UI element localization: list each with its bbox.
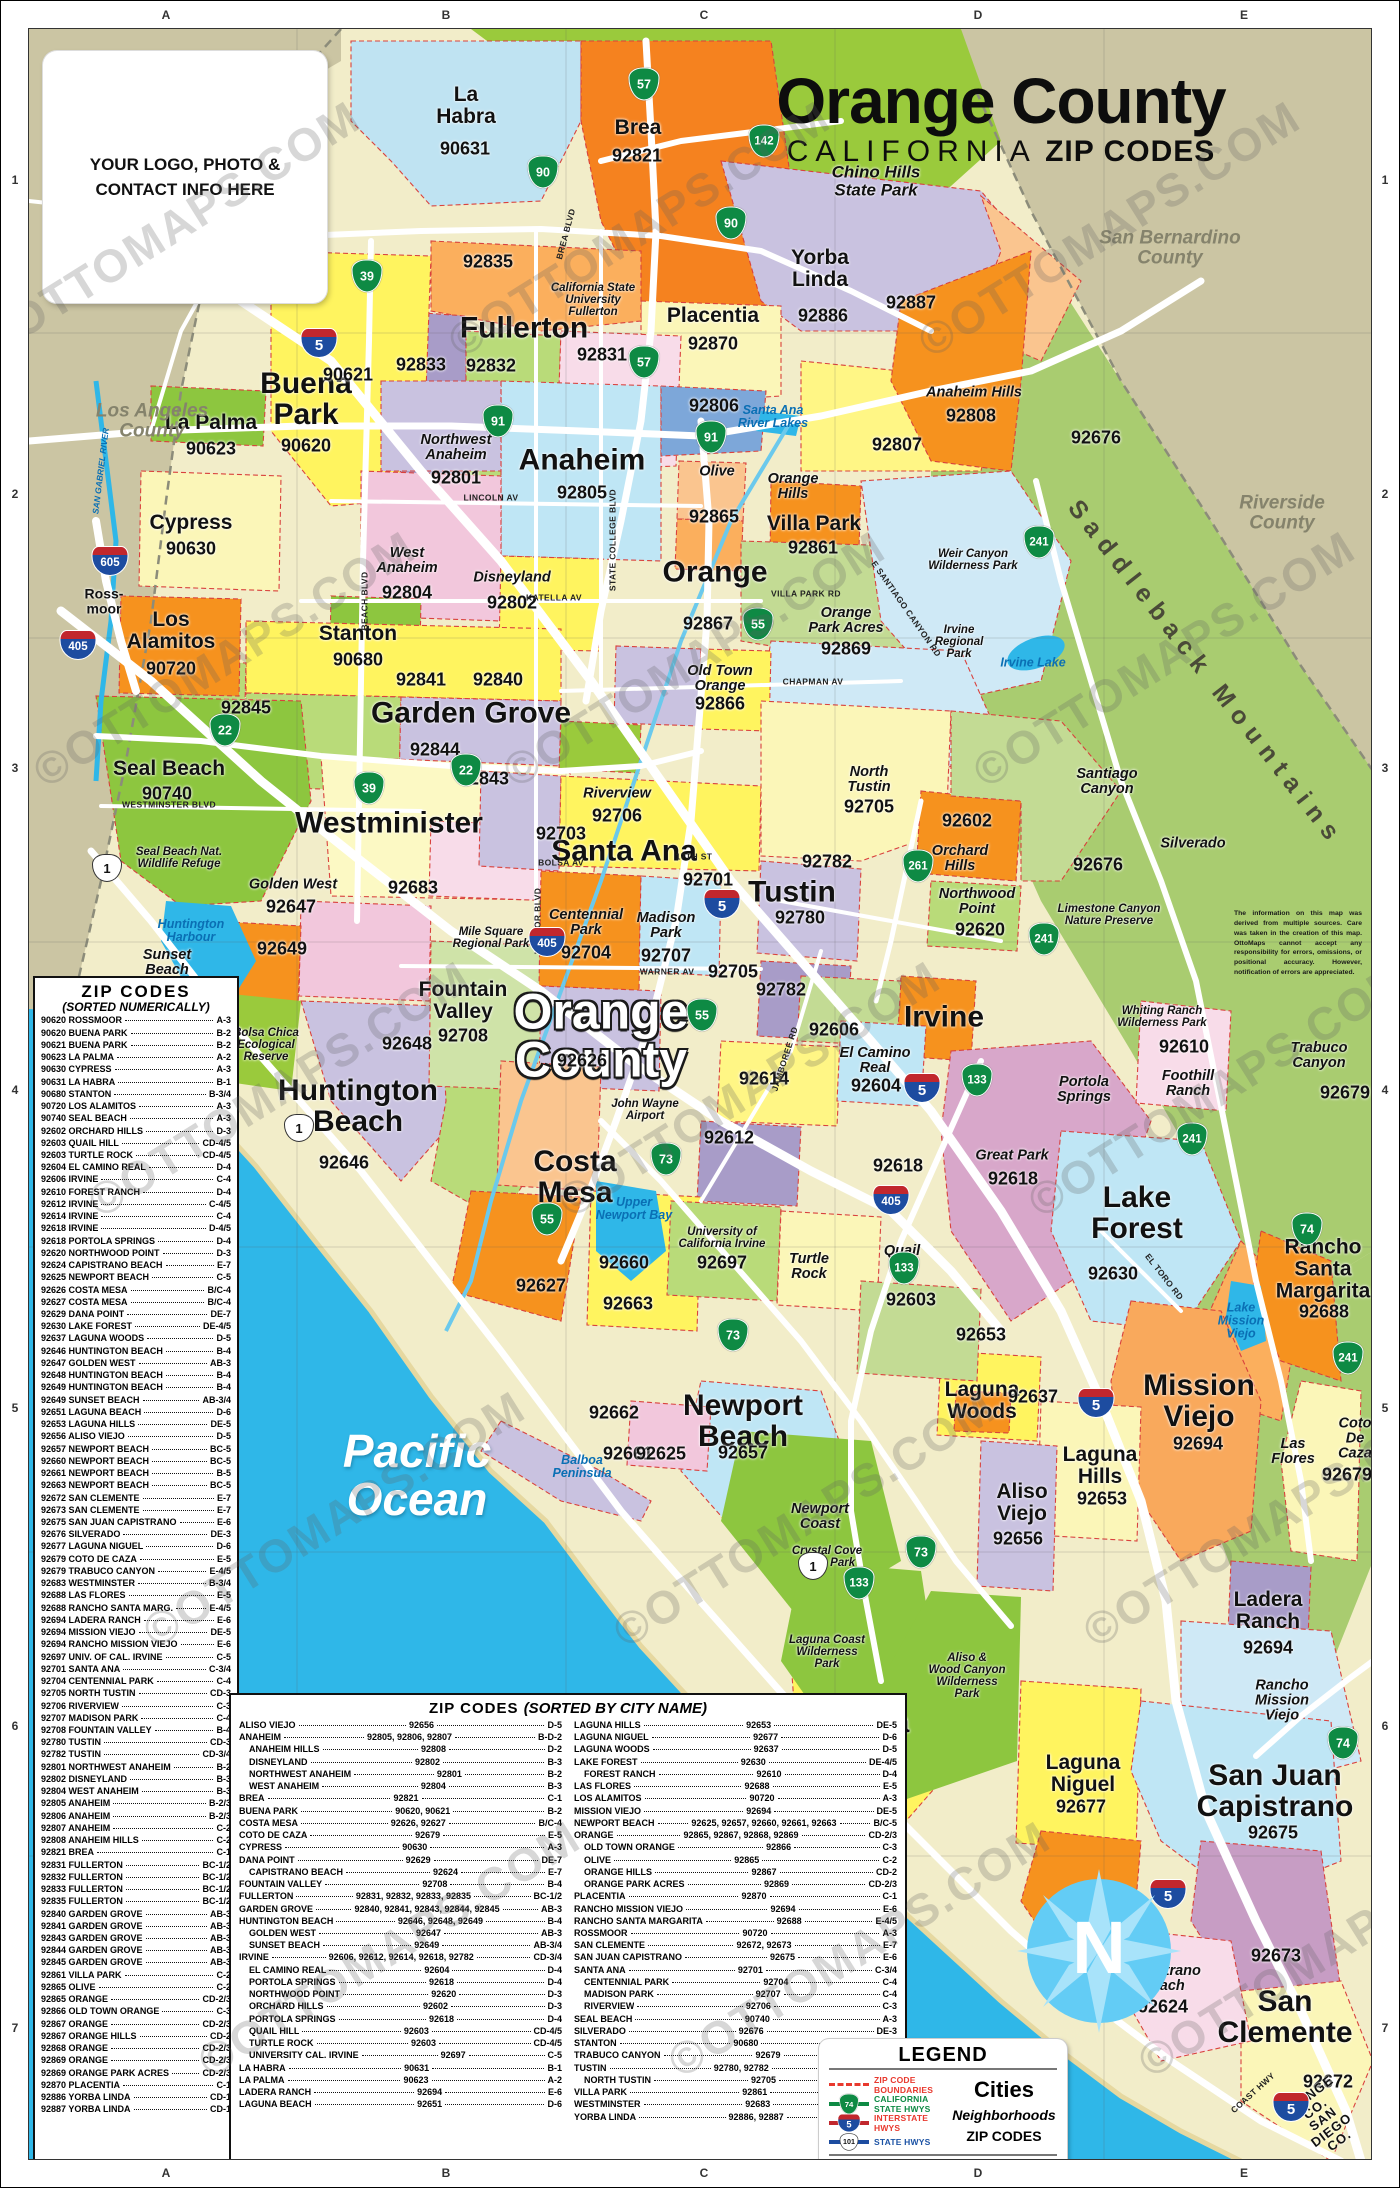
map-label: Villa Park [767,513,861,535]
zip-list-by-city-col1: ALISO VIEJO92656D-5ANAHEIM92805, 92806, … [239,1719,562,2123]
city-zip-row: RANCHO MISSION VIEJO92694E-6 [574,1903,897,1915]
city-zip-row: COSTA MESA92626, 92627B/C-4 [239,1817,562,1829]
zip-row: 92683 WESTMINSTERB-3/4 [41,1577,231,1589]
grid-ref-B: B [442,2166,451,2180]
city-zip-row: OLD TOWN ORANGE92866C-3 [574,1841,897,1853]
map-label: San Bernardino County [1099,228,1240,268]
map-label: San Clemente [1217,1986,1352,2048]
zip-row: 92677 LAGUNA NIGUELD-6 [41,1540,231,1552]
city-zip-row: CENTENNIAL PARK92704C-4 [574,1976,897,1988]
grid-ref-1: 1 [12,173,19,187]
zip-list-numeric-rows: 90620 ROSSMOORA-390620 BUENA PARKB-29062… [41,1014,231,2115]
map-label: WARNER AV [640,968,695,977]
map-label: 92886 [798,307,848,326]
zip-row: 92675 SAN JUAN CAPISTRANOE-6 [41,1516,231,1528]
map-label: Madison Park [637,911,696,941]
city-zip-row: LAS FLORES92688E-5 [574,1780,897,1792]
map-label: VILLA PARK RD [771,590,841,599]
zip-list-numeric-subtitle: (SORTED NUMERICALLY) [41,1000,231,1014]
grid-ref-7: 7 [12,2021,19,2035]
city-zip-row: ORANGE HILLS92867CD-2 [574,1866,897,1878]
map-label: 92618 [873,1157,923,1176]
city-zip-row: UNIVERSITY CAL. IRVINE92697C-5 [239,2049,562,2061]
map-label: California State University Fullerton [551,283,635,319]
subtitle-zipcodes: ZIP CODES [1045,135,1215,168]
map-label: Trabuco Canyon [1291,1041,1348,1071]
zip-row: 92861 VILLA PARKC-2 [41,1969,231,1981]
map-label: Ross- moor [85,586,124,615]
map-label: 92861 [788,539,838,558]
map-label: 92688 [1299,1303,1349,1322]
map-label: Orchard Hills [932,844,988,874]
compass-north-letter: N [1072,1905,1125,1990]
map-label: Huntington Harbour [158,918,225,944]
city-zip-row: QUAIL HILL92603CD-4/5 [239,2025,562,2037]
map-label: 92806 [689,397,739,416]
map-label: 92612 [704,1129,754,1148]
map-label: 92663 [603,1295,653,1314]
map-disclaimer: The information on this map was derived … [1234,909,1362,978]
map-label: 90623 [186,440,236,459]
map-label: Upper Newport Bay [596,1196,672,1222]
zip-row: 92661 NEWPORT BEACHB-5 [41,1467,231,1479]
zip-row: 92676 SILVERADODE-3 [41,1528,231,1540]
map-label: 92801 [431,469,481,488]
map-label: West Anaheim [376,546,437,576]
zip-row: 92651 LAGUNA BEACHD-6 [41,1406,231,1418]
zip-row: 92701 SANTA ANAC-3/4 [41,1663,231,1675]
city-zip-row: COTO DE CAZA92679E-5 [239,1829,562,1841]
zip-row: 92808 ANAHEIM HILLSC-2 [41,1834,231,1846]
city-zip-row: SAN CLEMENTE92672, 92673E-7 [574,1939,897,1951]
map-label: 92782 [802,853,852,872]
map-label: 92780 [775,909,825,928]
zip-row: 92618 PORTOLA SPRINGSD-4 [41,1235,231,1247]
city-zip-row: SUNSET BEACH92649AB-3/4 [239,1939,562,1951]
grid-letters-bottom: ABCDE [1,2159,1399,2187]
grid-ref-2: 2 [1382,487,1389,501]
grid-numbers-right: 1234567 [1371,1,1399,2187]
city-zip-row: EL CAMINO REAL92604D-4 [239,1964,562,1976]
map-label: Weir Canyon Wilderness Park [928,549,1017,573]
zip-row: 92843 GARDEN GROVEAB-3 [41,1932,231,1944]
map-label: 92662 [589,1404,639,1423]
map-label: Great Park [975,1148,1048,1163]
zip-row: 92627 COSTA MESAB/C-4 [41,1296,231,1308]
city-zip-row: FULLERTON92831, 92832, 92833, 92835BC-1/… [239,1890,562,1902]
zip-row: 92624 CAPISTRANO BEACHE-7 [41,1259,231,1271]
city-zip-row: ROSSMOOR90720A-3 [574,1927,897,1939]
zip-row: 92833 FULLERTONBC-1/2 [41,1883,231,1895]
map-label: 92694 [1243,1639,1293,1658]
zip-row: 92679 COTO DE CAZAE-5 [41,1553,231,1565]
grid-ref-E: E [1240,8,1248,22]
map-label: Rancho Mission Viejo [1238,1678,1327,1723]
grid-ref-7: 7 [1382,2021,1389,2035]
map-label: El Camino Real [840,1046,911,1076]
map-label: 92705 [844,798,894,817]
zip-row: 90630 CYPRESSA-3 [41,1063,231,1075]
map-label: Mission Viejo [1143,1370,1255,1432]
legend-label: STATE HWYS [874,2137,930,2147]
map-label: 92708 [438,1027,488,1046]
map-label: Lake Mission Viejo [1218,1302,1265,1341]
zip-row: 92688 LAS FLORESE-5 [41,1589,231,1601]
map-label: 92807 [872,436,922,455]
zip-row: 92620 NORTHWOOD POINTD-3 [41,1247,231,1259]
zip-row: 92618 IRVINED-4/5 [41,1222,231,1234]
map-label: Placentia [667,305,759,327]
grid-ref-6: 6 [1382,1719,1389,1733]
logo-placeholder-line2: CONTACT INFO HERE [95,177,274,203]
zip-row: 90621 BUENA PARKB-2 [41,1039,231,1051]
compass-rose: N [1014,1867,1184,2035]
legend-row: 74CALIFORNIA STATE HWYS [829,2094,951,2113]
map-label: 92833 [396,356,446,375]
map-label: Rancho Santa Margarita [1276,1236,1371,1301]
map-label: 92618 [988,1170,1038,1189]
map-label: Bolsa Chica Ecological Reserve [233,1028,299,1064]
zip-list-by-city: ZIP CODES (SORTED BY CITY NAME) ALISO VI… [229,1693,907,2159]
city-zip-row: OLIVE92865C-2 [574,1854,897,1866]
zip-row: 92801 NORTHWEST ANAHEIMB-2 [41,1761,231,1773]
zip-row: 92708 FOUNTAIN VALLEYB-4 [41,1724,231,1736]
zip-row: 92629 DANA POINTDE-7 [41,1308,231,1320]
map-label: 92832 [466,357,516,376]
legend-label: INTERSTATE HWYS [874,2113,951,2133]
legend-label: CALIFORNIA STATE HWYS [874,2094,951,2114]
map-label: CHAPMAN AV [783,678,844,687]
grid-ref-3: 3 [12,761,19,775]
map-label: 92887 [886,294,936,313]
map-poster: ABCDE ABCDE 1234567 1234567 [0,0,1400,2188]
map-label: 92603 [886,1291,936,1310]
city-zip-row: GOLDEN WEST92647AB-3 [239,1927,562,1939]
page-title: Orange County [651,69,1351,133]
map-label: 92677 [1056,1798,1106,1817]
city-zip-row: PORTOLA SPRINGS92618D-4 [239,1976,562,1988]
zip-row: 92845 GARDEN GROVEAB-3 [41,1956,231,1968]
zip-row: 92612 IRVINEC-4/5 [41,1198,231,1210]
zip-row: 92867 ORANGE HILLSCD-2 [41,2030,231,2042]
map-label: Golden West [249,877,337,892]
map-label: 92675 [1248,1824,1298,1843]
zip-row: 92782 TUSTINCD-3/4 [41,1748,231,1760]
map-label: Seal Beach Nat. Wildlife Refuge [136,847,222,871]
map-label: 90630 [166,540,216,559]
zip-row: 92630 LAKE FORESTDE-4/5 [41,1320,231,1332]
legend-shield-5: 5 [838,2113,861,2132]
map-label: BOLSA AV [538,859,584,868]
map-label: Lake Forest [1091,1182,1183,1244]
map-label: Turtle Rock [789,1252,829,1282]
map-label: 92808 [946,407,996,426]
logo-placeholder[interactable]: YOUR LOGO, PHOTO & CONTACT INFO HERE [43,51,327,303]
map-label: 92626 [557,1052,607,1071]
city-zip-row: LOS ALAMITOS90720A-3 [574,1792,897,1804]
zip-row: 92656 ALISO VIEJOD-5 [41,1430,231,1442]
map-label: 92804 [382,584,432,603]
zip-row: 92647 GOLDEN WESTAB-3 [41,1357,231,1369]
city-zip-row: SANTA ANA92701C-3/4 [574,1964,897,1976]
map-label: John Wayne Airport [611,1099,679,1123]
zip-row: 92648 HUNTINGTON BEACHB-4 [41,1369,231,1381]
zip-row: 92865 OLIVEC-2 [41,1981,231,1993]
page-subtitle: CALIFORNIA ZIP CODES [651,135,1351,169]
map-label: 92620 [955,921,1005,940]
map-label: Sunset Beach [143,948,191,978]
map-label: KATELLA AV [526,594,582,603]
city-zip-row: ORANGE92865, 92867, 92868, 92869CD-2/3 [574,1829,897,1841]
map-label: Los Alamitos [127,609,216,653]
map-label: Coto De Caza [1338,1416,1371,1461]
map-label: 92840 [473,671,523,690]
grid-ref-C: C [700,8,709,22]
zip-row: 90680 STANTONB-3/4 [41,1088,231,1100]
map-label: 92656 [993,1530,1043,1549]
map-label: 92637 [1008,1388,1058,1407]
grid-ref-A: A [162,2166,171,2180]
map-label: Santiago Canyon [1076,767,1137,797]
map-label: BEACH BLVD [361,571,370,630]
zip-row: 92706 RIVERVIEWC-3 [41,1700,231,1712]
grid-ref-4: 4 [12,1083,19,1097]
map-label: 90720 [146,660,196,679]
city-zip-row: LAGUNA NIGUEL92677D-6 [574,1731,897,1743]
city-zip-row: TURTLE ROCK92603CD-4/5 [239,2037,562,2049]
zip-row: 92807 ANAHEIMC-2 [41,1822,231,1834]
map-label: Portola Springs [1057,1075,1111,1105]
legend-swatch-zipdash [829,2083,869,2086]
map-label: 92676 [1071,429,1121,448]
legend-swatch-us: 101 [829,2140,869,2144]
zip-row: 90620 ROSSMOORA-3 [41,1014,231,1026]
map-label: 92841 [396,671,446,690]
zip-row: 92844 GARDEN GROVEAB-3 [41,1944,231,1956]
map-label: 92625 [636,1445,686,1464]
zip-row: 92870 PLACENTIAC-1 [41,2079,231,2091]
zip-row: 92804 WEST ANAHEIMB-3 [41,1785,231,1797]
map-label: San Juan Capistrano [1197,1760,1354,1822]
zip-row: 92604 EL CAMINO REALD-4 [41,1161,231,1173]
map-label: La Habra [436,84,496,128]
grid-ref-3: 3 [1382,761,1389,775]
map-label: Los Angeles County [96,401,208,441]
zip-row: 92649 HUNTINGTON BEACHB-4 [41,1381,231,1393]
legend-row: 5INTERSTATE HWYS [829,2113,951,2132]
legend-rows: ZIP CODE BOUNDARIES74CALIFORNIA STATE HW… [829,2075,951,2151]
map-label: 92610 [1159,1038,1209,1057]
map-label: Irvine Lake [1000,657,1065,670]
map-label: 17TH ST [676,853,713,862]
map-label: Seal Beach [113,758,225,780]
city-zip-row: GARDEN GROVE92840, 92841, 92843, 92844, … [239,1903,562,1915]
legend-swatch-state: 74 [829,2102,869,2106]
zip-row: 92625 NEWPORT BEACHC-5 [41,1271,231,1283]
city-zip-row: SAN JUAN CAPISTRANO92675E-6 [574,1951,897,1963]
city-zip-row: PORTOLA SPRINGS92618D-4 [239,2013,562,2025]
zip-row: 92869 ORANGECD-2/3 [41,2054,231,2066]
zip-row: 92603 QUAIL HILLCD-4/5 [41,1137,231,1149]
city-zip-row: LAGUNA BEACH92651D-6 [239,2098,562,2110]
map-label: Anaheim [519,444,646,475]
map-label: Riverview [583,786,651,801]
city-zip-row: RIVERVIEW92706C-3 [574,2000,897,2012]
zip-row: 92688 RANCHO SANTA MARG.E-4/5 [41,1602,231,1614]
zip-row: 92841 GARDEN GROVEAB-3 [41,1920,231,1932]
zip-row: 92694 LADERA RANCHE-6 [41,1614,231,1626]
city-zip-row: BREA92821C-1 [239,1792,562,1804]
legend-shield-74: 74 [839,2093,858,2113]
zip-row: 92887 YORBA LINDACD-1 [41,2103,231,2115]
city-zip-row: FOREST RANCH92610D-4 [574,1768,897,1780]
title-block: Orange County CALIFORNIA ZIP CODES [651,69,1351,169]
map-label: 92648 [382,1035,432,1054]
zip-row: 92867 ORANGECD-2/3 [41,2018,231,2030]
zip-row: 92660 NEWPORT BEACHBC-5 [41,1455,231,1467]
map-label: 92870 [688,335,738,354]
zip-row: 92602 ORCHARD HILLSD-3 [41,1125,231,1137]
zip-row: 92614 IRVINEC-4 [41,1210,231,1222]
map-label: 92653 [1077,1490,1127,1509]
map-label: Aliso & Wood Canyon Wilderness Park [928,1653,1005,1701]
city-zip-row: NORTHWOOD POINT92620D-3 [239,1988,562,2000]
grid-ref-A: A [162,8,171,22]
legend-row: 101STATE HWYS [829,2132,951,2151]
grid-ref-D: D [974,2166,983,2180]
map-label: Mile Square Regional Park [453,927,530,951]
map-label: LINCOLN AV [464,494,519,503]
zip-row: 92802 DISNEYLANDB-3 [41,1773,231,1785]
map-label: Newport Coast [791,1502,849,1532]
map-label: Ladera Ranch [1234,1589,1303,1633]
zip-row: 92805 ANAHEIMB-2/3 [41,1797,231,1809]
city-zip-row: ALISO VIEJO92656D-5 [239,1719,562,1731]
map-label: 92705 [708,963,758,982]
city-zip-row: NORTHWEST ANAHEIM92801B-2 [239,1768,562,1780]
legend-samples: Cities Neighborhoods ZIP CODES [951,2075,1057,2151]
map-label: 92660 [599,1254,649,1273]
map-label: Olive [699,464,734,479]
map-label: Pacific Ocean [343,1428,491,1524]
map-label: Old Town Orange [687,664,753,694]
city-zip-row: LA PALMA90623A-2 [239,2074,562,2086]
map-label: 92703 [536,825,586,844]
map-label: 92704 [561,944,611,963]
legend-row: ZIP CODE BOUNDARIES [829,2075,951,2094]
zip-row: 92835 FULLERTONBC-1/2 [41,1895,231,1907]
map-label: 92646 [319,1154,369,1173]
grid-ref-D: D [974,8,983,22]
city-zip-row: MADISON PARK92707C-4 [574,1988,897,2000]
zip-row: 92832 FULLERTONBC-1/2 [41,1871,231,1883]
map-label: Silverado [1160,836,1225,851]
city-zip-row: SEAL BEACH90740A-3 [574,2013,897,2025]
city-zip-row: FOUNTAIN VALLEY92708B-4 [239,1878,562,1890]
map-label: 92627 [516,1277,566,1296]
legend: LEGEND ZIP CODE BOUNDARIES74CALIFORNIA S… [819,2039,1067,2159]
zip-list-numeric: ZIP CODES (SORTED NUMERICALLY) 90620 ROS… [33,976,239,2159]
map-label: 92649 [257,940,307,959]
city-zip-row: ORCHARD HILLS92602D-3 [239,2000,562,2012]
map-label: 92606 [809,1021,859,1040]
zip-row: 92679 TRABUCO CANYONE-4/5 [41,1565,231,1577]
map-label: 92647 [266,898,316,917]
map-label: Aliso Viejo [996,1481,1047,1525]
zip-row: 92840 GARDEN GROVEAB-3 [41,1908,231,1920]
map-label: Orange Hills [768,472,819,502]
city-zip-row: LAGUNA HILLS92653DE-5 [574,1719,897,1731]
legend-divider-bottom [829,2154,1057,2156]
grid-ref-5: 5 [12,1401,19,1415]
city-zip-row: NEWPORT BEACH92625, 92657, 92660, 92661,… [574,1817,897,1829]
map-label: 90620 [281,437,331,456]
zip-row: 92705 NORTH TUSTINCD-3 [41,1687,231,1699]
map-canvas: ©OTTOMAPS.COM©OTTOMAPS.COM©OTTOMAPS.COM©… [29,29,1371,2159]
grid-ref-2: 2 [12,487,19,501]
map-label: Disneyland [473,570,550,585]
city-zip-row: LAGUNA WOODS92637D-5 [574,1743,897,1755]
map-label: Tustin [748,876,836,907]
map-label: 92679 [1320,1084,1370,1103]
zip-row: 92663 NEWPORT BEACHBC-5 [41,1479,231,1491]
map-label: 92683 [388,879,438,898]
map-label: Whiting Ranch Wilderness Park [1117,1006,1206,1030]
map-label: 92782 [756,981,806,1000]
city-zip-row: HUNTINGTON BEACH92646, 92648, 92649B-4 [239,1915,562,1927]
zip-row: 92653 LAGUNA HILLSDE-5 [41,1418,231,1430]
city-zip-row: LAKE FOREST92630DE-4/5 [574,1756,897,1768]
map-label: Orange Park Acres [808,606,883,636]
zip-row: 92657 NEWPORT BEACHBC-5 [41,1443,231,1455]
logo-placeholder-line1: YOUR LOGO, PHOTO & [90,152,280,178]
zip-row: 92673 SAN CLEMENTEE-7 [41,1504,231,1516]
map-label: Northwood Point [939,887,1016,917]
map-label: Laguna Coast Wilderness Park [789,1635,865,1671]
zip-row: 90740 SEAL BEACHA-3 [41,1112,231,1124]
map-label: University of California Irvine [679,1227,766,1251]
map-label: North Tustin [847,765,890,795]
grid-letters-top: ABCDE [1,1,1399,29]
zip-row: 92694 MISSION VIEJODE-5 [41,1626,231,1638]
grid-ref-5: 5 [1382,1401,1389,1415]
map-label: 92630 [1088,1265,1138,1284]
map-label: Irvine Regional Park [935,625,984,661]
zip-list-by-city-subtitle: (SORTED BY CITY NAME) [524,1700,707,1717]
zip-list-by-city-title-text: ZIP CODES [429,1700,519,1717]
legend-swatch-interstate: 5 [829,2121,869,2125]
grid-ref-1: 1 [1382,173,1389,187]
legend-label: ZIP CODE BOUNDARIES [874,2075,951,2095]
map-label: 92805 [557,484,607,503]
city-zip-row: LA HABRA90631B-1 [239,2062,562,2074]
map-label: Las Flores [1271,1437,1315,1467]
zip-row: 92704 CENTENNIAL PARKC-4 [41,1675,231,1687]
zip-row: 92831 FULLERTONBC-1/2 [41,1859,231,1871]
grid-ref-C: C [700,2166,709,2180]
map-label: 92604 [851,1077,901,1096]
city-zip-row: LADERA RANCH92694E-6 [239,2086,562,2098]
city-zip-row: SILVERADO92676DE-3 [574,2025,897,2037]
map-label: 90631 [440,140,490,159]
grid-numbers-left: 1234567 [1,1,29,2187]
city-zip-row: ORANGE PARK ACRES92869CD-2/3 [574,1878,897,1890]
zip-row: 92707 MADISON PARKC-4 [41,1712,231,1724]
legend-sample-zipcodes: ZIP CODES [951,2128,1057,2144]
map-label: 92701 [683,871,733,890]
map-label: 92869 [821,640,871,659]
zip-row: 92865 ORANGECD-2/3 [41,1993,231,2005]
